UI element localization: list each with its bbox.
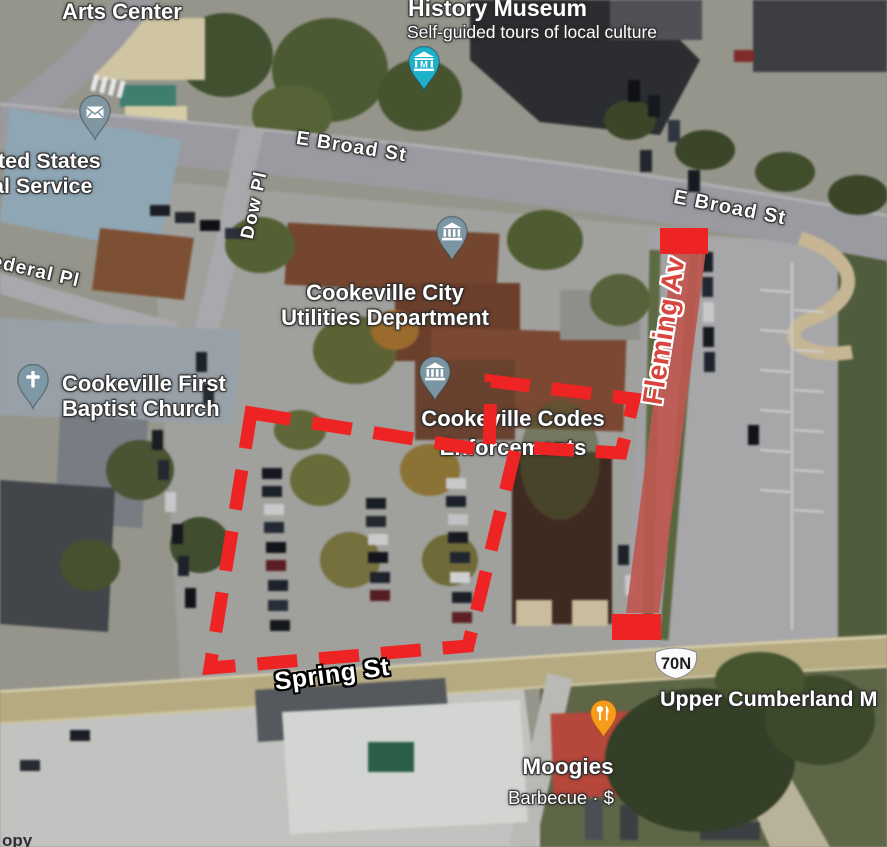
label-history-museum-subtitle: Self-guided tours of local culture xyxy=(407,23,657,42)
label-postal-service-line1[interactable]: ted States xyxy=(0,150,101,174)
codes-pin[interactable] xyxy=(418,355,452,403)
map-viewport[interactable]: Arts Center History Museum Self-guided t… xyxy=(0,0,887,847)
label-arts-center[interactable]: Arts Center xyxy=(62,0,182,24)
post-office-pin[interactable] xyxy=(78,94,112,142)
attribution-fragment: opy xyxy=(2,831,32,847)
label-church-line1[interactable]: Cookeville First xyxy=(62,372,226,396)
label-codes-line2[interactable]: Enforcements xyxy=(440,436,587,460)
moogies-pin[interactable] xyxy=(589,699,618,740)
history-museum-pin[interactable]: M xyxy=(407,45,441,93)
label-moogies[interactable]: Moogies xyxy=(522,755,613,780)
label-utilities-line2[interactable]: Utilities Department xyxy=(281,306,489,330)
route-shield-text: 70N xyxy=(661,655,691,673)
label-postal-service-line2[interactable]: al Service xyxy=(0,175,92,199)
label-history-museum[interactable]: History Museum xyxy=(408,0,587,21)
label-church-line2[interactable]: Baptist Church xyxy=(62,397,220,421)
envelope-icon xyxy=(87,107,104,119)
label-utilities-line1[interactable]: Cookeville City xyxy=(306,281,464,305)
route-70n-shield: 70N xyxy=(650,645,702,681)
utilities-pin[interactable] xyxy=(435,215,469,263)
label-moogies-subtitle: Barbecue · $ xyxy=(508,788,614,808)
label-codes-line1[interactable]: Cookeville Codes xyxy=(421,407,604,431)
church-pin[interactable] xyxy=(16,363,50,411)
label-upper-cumberland[interactable]: Upper Cumberland M xyxy=(660,688,877,712)
